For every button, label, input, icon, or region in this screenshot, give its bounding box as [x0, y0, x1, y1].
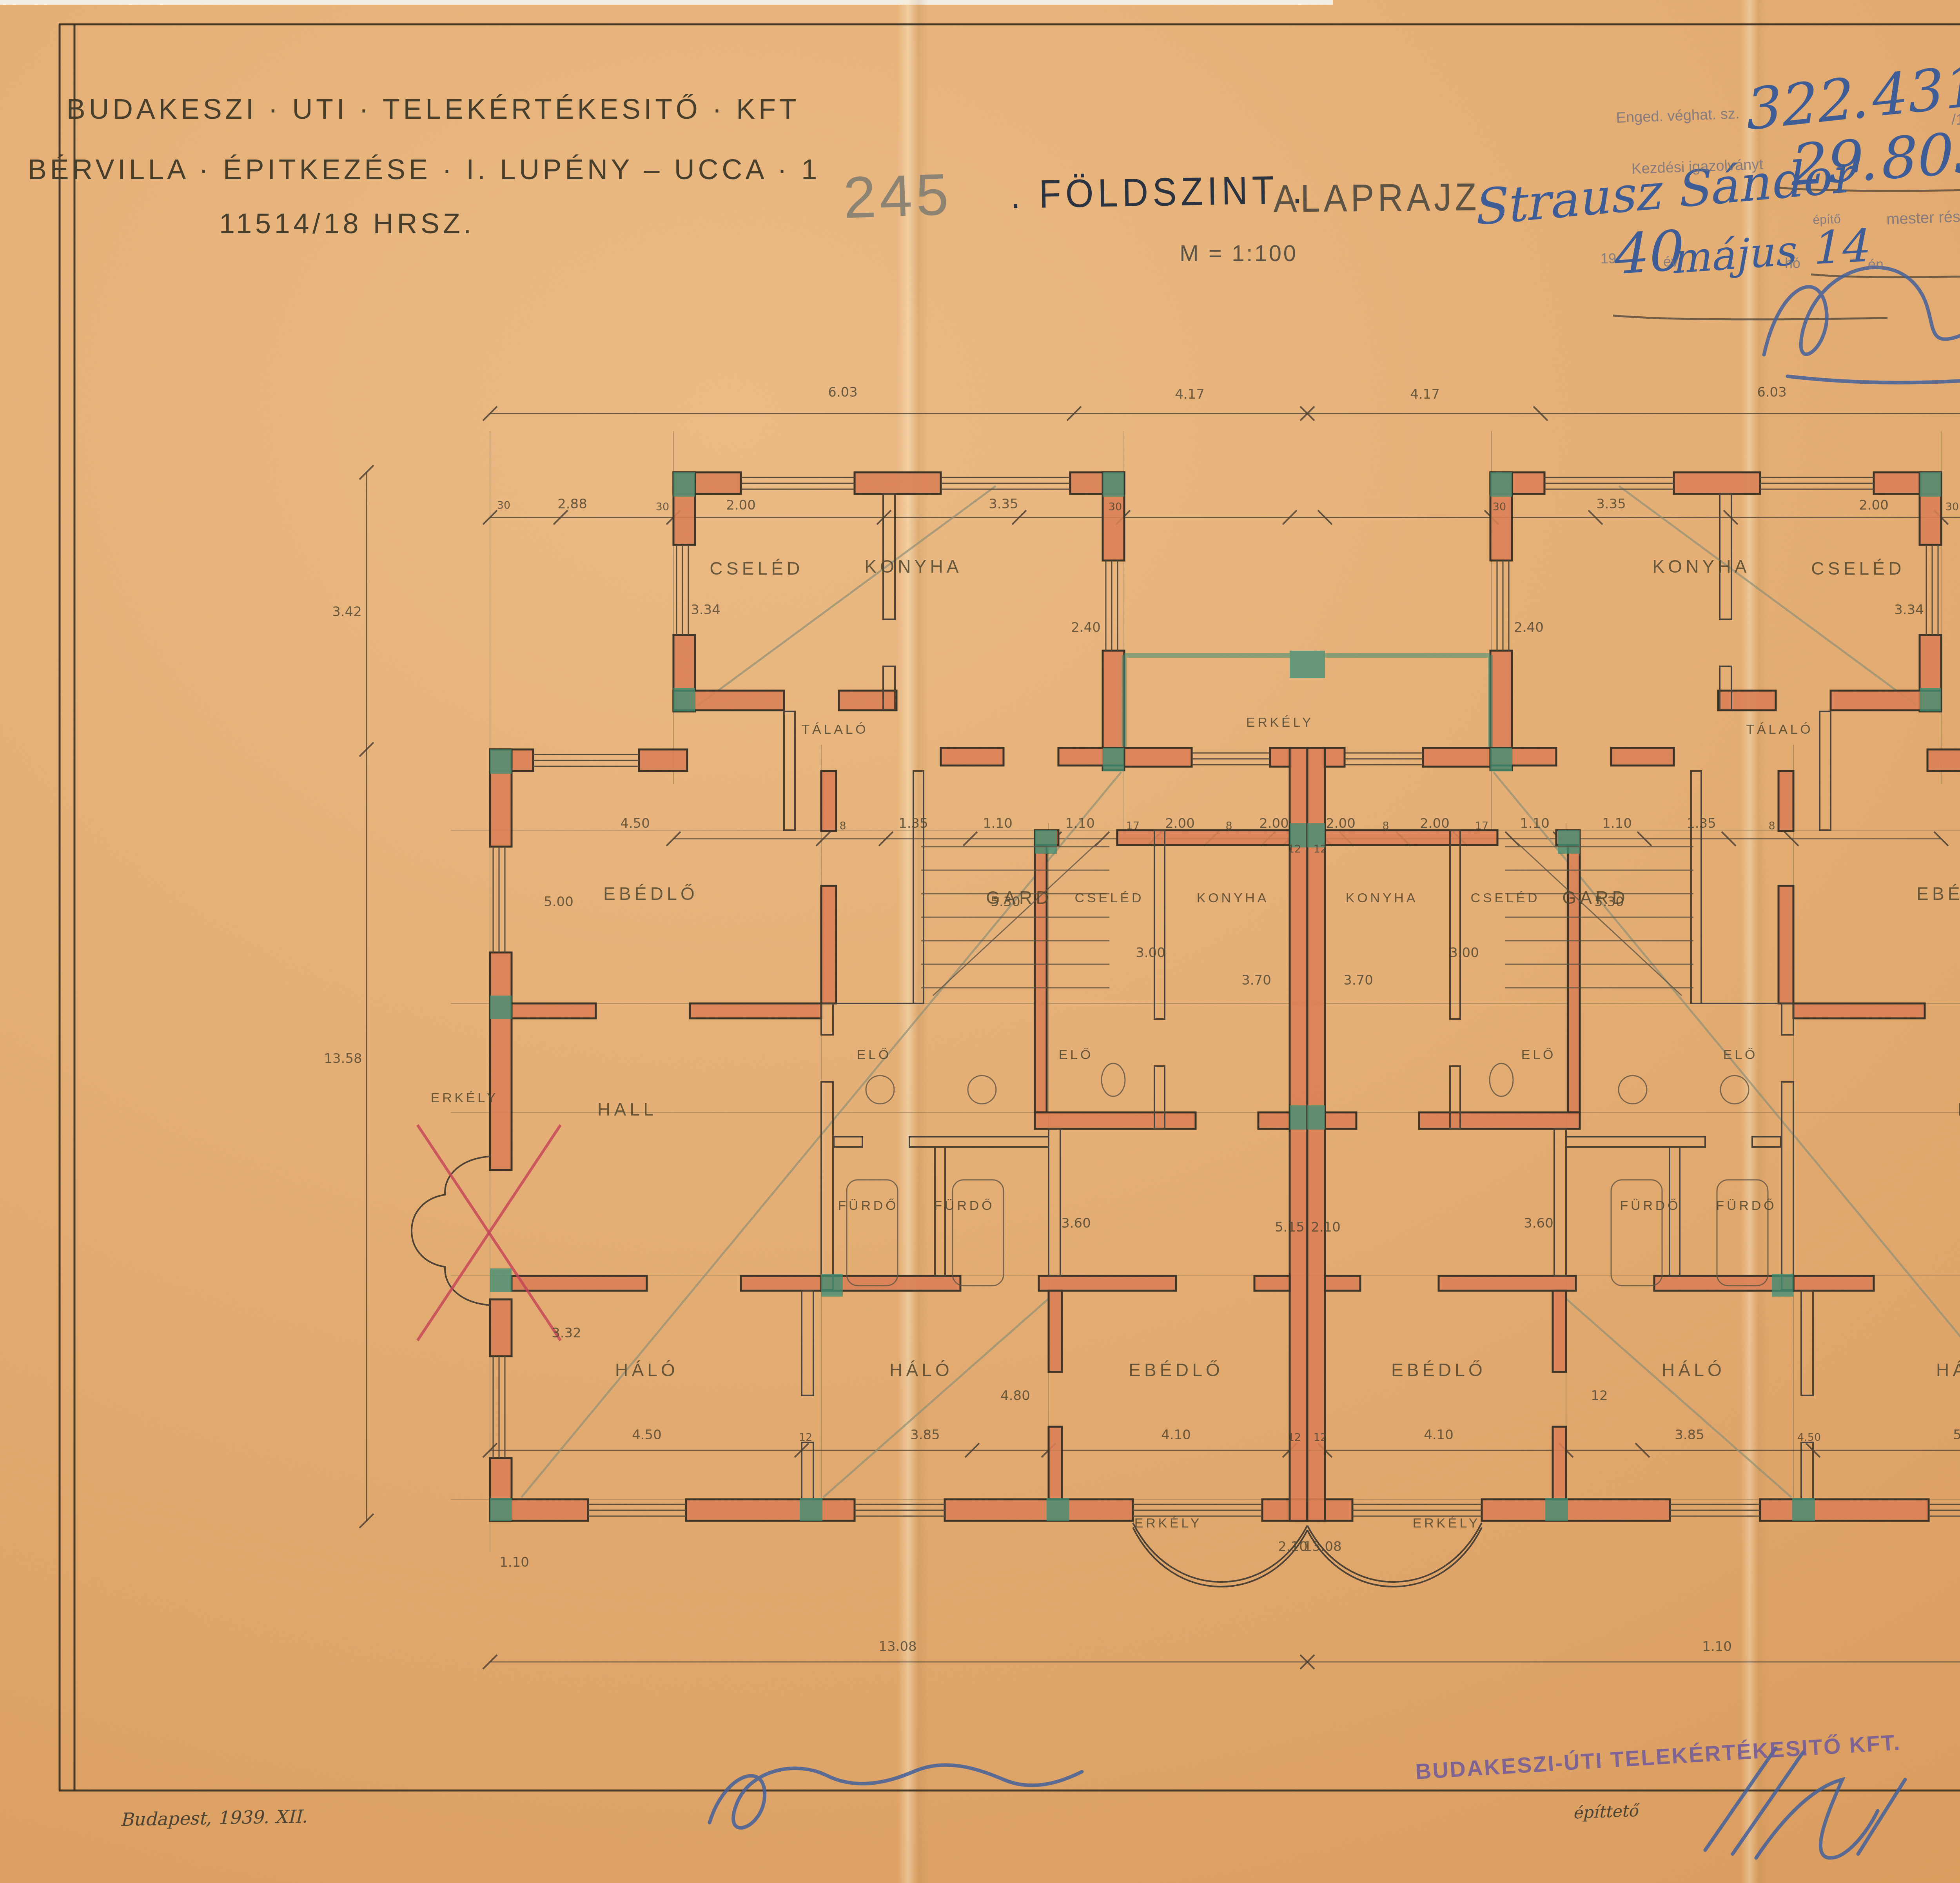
dim-label: 5.30: [1594, 894, 1624, 909]
dim-label: 2.00: [1326, 815, 1356, 831]
dim-label: 4.17: [1410, 386, 1440, 402]
room-label: HALL: [597, 1099, 657, 1120]
dim-label: 3.34: [1894, 602, 1924, 617]
room-label: TÁLALÓ: [801, 722, 868, 737]
dim-label: 1.35: [898, 815, 928, 831]
dim-label: 2.10: [1311, 1219, 1341, 1235]
dim-label: 1.10: [983, 815, 1013, 831]
dim-label: 12: [799, 1431, 812, 1443]
dim-label: 13.08: [1303, 1538, 1341, 1554]
dim-label: 4.17: [1175, 386, 1205, 402]
project-title-line1: BUDAKESZI · UTI · TELEKÉRTÉKESITŐ · KFT: [67, 93, 800, 125]
dim-label: 12: [1591, 1388, 1608, 1403]
dim-label: 1.10: [1602, 815, 1632, 831]
room-label: KONYHA: [1652, 556, 1750, 577]
room-label: HALL: [1958, 1099, 1960, 1120]
dim-label: 3.35: [989, 496, 1018, 512]
dim-label: 1.10: [1065, 815, 1095, 831]
dim-label: 5.30: [991, 894, 1020, 909]
room-label: ERKÉLY: [1413, 1515, 1480, 1531]
room-label: EBÉDLŐ: [1129, 1359, 1223, 1381]
project-title-line2: BÉRVILLA · ÉPITKEZÉSE · I. LUPÉNY – UCCA…: [28, 153, 820, 185]
dim-label: 13.08: [878, 1638, 916, 1654]
dim-label: 1.10: [1702, 1638, 1732, 1654]
dim-label: 2.00: [1165, 815, 1195, 831]
dim-label: 2.00: [1859, 497, 1889, 513]
dim-label: 2.40: [1071, 619, 1101, 635]
room-label: ELŐ: [857, 1047, 891, 1062]
dim-label: 3.00: [1449, 945, 1479, 960]
drawing-title-ink: . FÖLDSZINT .: [1010, 167, 1307, 218]
room-label: ERKÉLY: [1246, 715, 1314, 730]
dim-label: 4.50: [1797, 1431, 1821, 1443]
room-label: FÜRDŐ: [838, 1198, 899, 1213]
dim-label: 30: [1945, 501, 1959, 513]
dim-label: 3.34: [691, 602, 720, 617]
dim-label: 2.00: [1259, 815, 1289, 831]
stamp-date-month: május: [1669, 227, 1796, 283]
room-label: ELŐ: [1521, 1047, 1556, 1062]
room-label: FÜRDŐ: [934, 1198, 995, 1213]
dim-label: 8: [1225, 820, 1232, 832]
sheet-number: 245: [842, 160, 953, 232]
room-label: ELŐ: [1059, 1047, 1093, 1062]
room-label: EBÉDLŐ: [603, 883, 698, 904]
dim-label: 6.03: [1757, 384, 1787, 400]
dim-label: 4.10: [1424, 1427, 1454, 1442]
room-label: KONYHA: [864, 556, 962, 577]
dim-label: 2.88: [557, 496, 587, 512]
parcel-number: 11514/18 HRSZ.: [219, 207, 475, 239]
dim-label: 3.60: [1524, 1215, 1553, 1231]
dim-label: 8: [1768, 820, 1775, 832]
room-label: CSELÉD: [1811, 558, 1905, 579]
scanned-blueprint-page: BUDAKESZI · UTI · TELEKÉRTÉKESITŐ · KFT …: [0, 0, 1960, 1883]
stamp-certificate-number: 29.805: [1784, 119, 1960, 199]
room-label: HÁLÓ: [1662, 1359, 1725, 1381]
room-label: ERKÉLY: [431, 1090, 498, 1105]
dim-label: 30: [497, 499, 510, 511]
drawing-scale: M = 1:100: [1180, 240, 1298, 266]
dim-label: 3.35: [1596, 496, 1626, 512]
dim-label: 30: [1109, 501, 1122, 513]
dim-label: 12: [1314, 843, 1327, 855]
dim-label: 12: [1314, 1431, 1327, 1443]
stamp-date-day: 14: [1808, 219, 1868, 274]
room-label: EBÉDLŐ: [1391, 1359, 1486, 1381]
dim-label: 1.10: [499, 1554, 529, 1570]
stamp-date-ho: hó: [1785, 255, 1800, 272]
dim-label: 3.00: [1136, 945, 1165, 960]
room-label: CSELÉD: [1471, 890, 1540, 905]
dim-label: 2.00: [1420, 815, 1450, 831]
dim-label: 30: [656, 501, 669, 513]
dim-label: 4.80: [1000, 1388, 1030, 1403]
room-label: FÜRDŐ: [1716, 1198, 1777, 1213]
dim-label: 17: [1126, 820, 1140, 832]
dim-label: 13.58: [324, 1050, 362, 1066]
room-label: TÁLALÓ: [1746, 722, 1813, 737]
dim-label: 2.00: [726, 497, 756, 513]
room-label: CSELÉD: [1075, 890, 1144, 905]
owner-role-note: építtető: [1572, 1801, 1638, 1823]
dim-label: 1.10: [1520, 815, 1550, 831]
dim-label: 17: [1475, 820, 1488, 832]
dim-label: 4.10: [1161, 1427, 1191, 1442]
dim-label: 4.50: [632, 1427, 662, 1442]
dim-label: 5.15: [1953, 1427, 1960, 1442]
dim-label: 3.85: [910, 1427, 940, 1442]
room-label: CSELÉD: [710, 558, 803, 579]
room-label: KONYHA: [1197, 890, 1269, 905]
dim-label: 3.70: [1343, 972, 1373, 988]
dim-label: 1.35: [1686, 815, 1716, 831]
room-label: HÁLÓ: [615, 1359, 679, 1381]
dim-label: 6.03: [828, 384, 858, 400]
dim-label: 3.42: [332, 604, 362, 619]
dim-label: 12: [1288, 843, 1301, 855]
dim-label: 8: [839, 820, 846, 832]
dim-label: 5.00: [544, 894, 573, 909]
dim-label: 3.85: [1675, 1427, 1704, 1442]
drawing-title-pencil: ALAPRAJZ: [1273, 175, 1480, 221]
dim-label: 2.40: [1514, 619, 1544, 635]
room-label: KONYHA: [1346, 890, 1418, 905]
room-label: HÁLÓ: [1936, 1359, 1960, 1381]
dim-label: 3.70: [1241, 972, 1271, 988]
date-note: Budapest, 1939. XII.: [120, 1806, 307, 1830]
dim-label: 5.15: [1275, 1219, 1305, 1235]
stamp-date-en: én.: [1868, 256, 1887, 273]
dim-label: 8: [1382, 820, 1389, 832]
room-label: ELŐ: [1723, 1047, 1758, 1062]
room-label: FÜRDŐ: [1620, 1198, 1681, 1213]
dim-label: 3.60: [1061, 1215, 1091, 1231]
dim-label: 12: [1288, 1431, 1301, 1443]
room-label: EBÉDLŐ: [1916, 883, 1960, 904]
dim-label: 4.50: [620, 815, 650, 831]
room-label: ERKÉLY: [1134, 1515, 1202, 1531]
dim-label: 3.32: [552, 1325, 581, 1341]
dim-label: 30: [1493, 501, 1506, 513]
room-label: HÁLÓ: [889, 1359, 953, 1381]
